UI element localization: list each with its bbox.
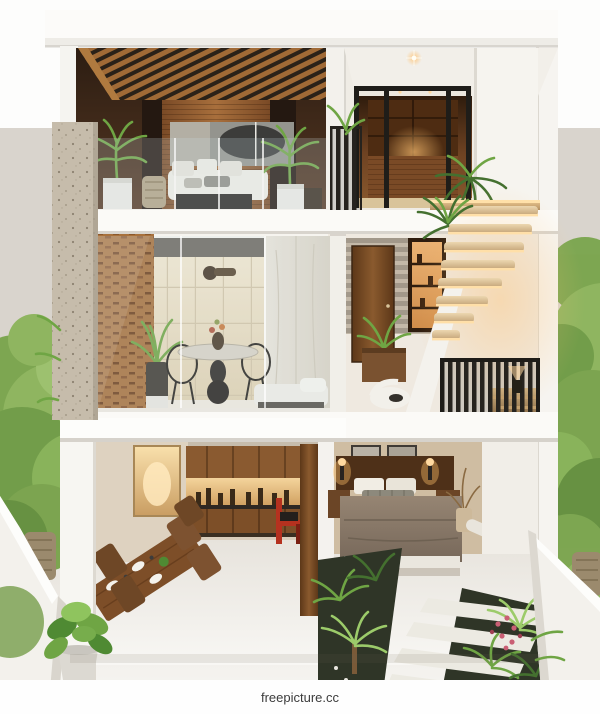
- backlit-panel: [134, 446, 180, 516]
- ceiling-downlight: [406, 50, 422, 66]
- house-cutaway-render: freepicture.cc: [0, 0, 600, 714]
- roof-slab: [45, 10, 558, 40]
- house-base-shadow: [70, 654, 540, 663]
- top-floor-suite: [328, 48, 558, 214]
- floor-slab-lower: [60, 412, 558, 442]
- render-canvas: freepicture.cc: [0, 0, 600, 714]
- countertop: [186, 505, 302, 509]
- pergola: [78, 48, 344, 100]
- interior-door: [300, 444, 318, 616]
- watermark: freepicture.cc: [261, 690, 340, 705]
- glass-balustrade-top: [76, 138, 330, 215]
- glass-front-middle: [76, 236, 330, 416]
- slatted-screen: [330, 126, 362, 214]
- middle-floor-left: [76, 234, 330, 416]
